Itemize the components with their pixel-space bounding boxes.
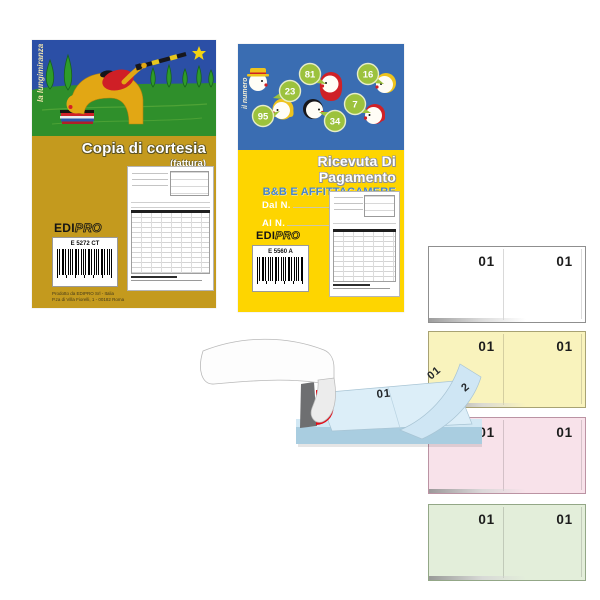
edipro-logo: EDIPRO — [256, 230, 300, 242]
ticket-number-right: 01 — [556, 512, 573, 527]
receipt-book-ricevuta-pagamento: 23 81 16 95 7 — [238, 44, 404, 312]
receipt-form-preview — [329, 191, 400, 297]
fill-in-line — [287, 225, 329, 226]
pad-right-edge — [581, 334, 583, 404]
manufacturer-text: Prodotto da EDIPRO Srl - Italia P.za di … — [52, 291, 124, 303]
form-header — [333, 195, 396, 217]
invoice-form-preview — [127, 166, 214, 291]
perforation-line — [503, 334, 504, 405]
book1-cover-illustration: la lungimiranza — [32, 40, 216, 136]
perforation-line — [503, 249, 504, 320]
hand — [141, 63, 147, 69]
sky-background — [238, 44, 404, 150]
svg-text:16: 16 — [363, 70, 374, 81]
barcode — [257, 257, 304, 281]
pad-right-edge — [581, 420, 583, 490]
perforation-line — [503, 420, 504, 491]
product-code: E 5272 CT — [53, 241, 117, 247]
svg-text:34: 34 — [330, 117, 341, 128]
form-header — [131, 170, 210, 196]
barcode-card: E 5272 CT — [52, 237, 118, 287]
ticket-number-right: 01 — [556, 254, 573, 269]
form-dotted-lines — [333, 219, 396, 228]
book2-side-label: il numero — [242, 77, 249, 109]
pad-bottom-edge — [429, 576, 526, 580]
page-number: 01 — [376, 388, 392, 401]
barcode-card: E 5560 A — [252, 245, 309, 292]
form-table-grid — [131, 213, 210, 274]
svg-text:23: 23 — [285, 87, 296, 98]
ticket-number-right: 01 — [556, 425, 573, 440]
form-footer — [333, 282, 396, 293]
form-table-grid — [333, 232, 396, 282]
svg-text:95: 95 — [258, 112, 269, 123]
edipro-logo: EDIPRO — [54, 221, 102, 235]
book2-title: Ricevuta Di Pagamento — [238, 153, 396, 185]
page-number: 01 — [425, 364, 443, 382]
ticket-pad-white: 01 01 — [428, 246, 586, 323]
form-footer — [131, 274, 210, 287]
to-number-field: Al N. — [262, 218, 329, 229]
heart-mark — [69, 105, 73, 109]
telescope-band — [152, 61, 159, 63]
book1-title: Copia di cortesia — [82, 140, 206, 157]
barcode — [57, 249, 113, 275]
white-flipped-page — [200, 339, 335, 422]
pad-right-edge — [581, 249, 583, 319]
book1-side-label: la lungimiranza — [36, 43, 45, 102]
form-dotted-lines — [131, 198, 210, 209]
ticket-number-left: 01 — [429, 512, 495, 527]
ticket-pad-green: 01 01 — [428, 504, 586, 581]
product-code: E 5560 A — [253, 249, 308, 255]
pad-bottom-edge — [429, 489, 526, 493]
face-red-hair-woman — [320, 72, 342, 101]
pad-right-edge — [581, 507, 583, 577]
pad-shadow — [298, 444, 482, 447]
product-collage: la lungimiranza Copia di cortesia (fattu… — [0, 0, 600, 600]
ticket-number-right: 01 — [556, 339, 573, 354]
pad-base-front — [296, 427, 482, 444]
svg-text:7: 7 — [352, 100, 357, 111]
open-pad-demo: 01 01 2 — [188, 322, 488, 458]
svg-text:81: 81 — [305, 70, 316, 81]
perforation-line — [503, 507, 504, 578]
book2-cover-illustration: 23 81 16 95 7 — [238, 44, 404, 150]
receipt-book-copia-di-cortesia: la lungimiranza Copia di cortesia (fattu… — [32, 40, 216, 308]
ticket-number-left: 01 — [429, 254, 495, 269]
from-number-field: Dal N. — [262, 200, 335, 211]
telescope-band — [170, 57, 177, 59]
